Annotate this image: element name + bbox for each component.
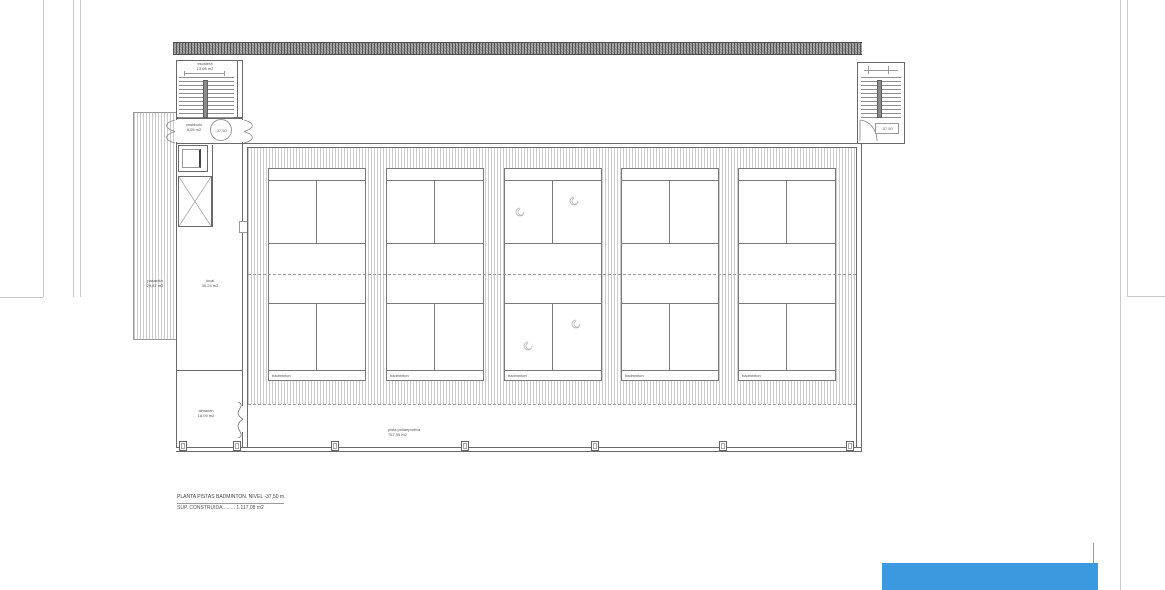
column — [233, 441, 241, 451]
column — [331, 441, 339, 451]
c-vl — [786, 180, 787, 243]
dimension-line — [864, 70, 898, 71]
c-hl — [622, 243, 718, 244]
sketch-symbol — [569, 196, 579, 206]
c-hl — [505, 243, 601, 244]
c-hl — [622, 303, 718, 304]
blue-panel[interactable] — [882, 563, 1098, 590]
plan-line — [167, 120, 175, 143]
title-line-1: PLANTA PISTAS BADMINTON. NIVEL -37,50 m. — [177, 494, 285, 500]
plan-line — [179, 177, 211, 226]
net-center-line — [248, 274, 856, 275]
c-hl — [505, 303, 601, 304]
plan-line — [524, 342, 532, 350]
plan-line: 6,05 m2 — [178, 128, 210, 133]
column — [179, 441, 187, 451]
sketch-symbol — [571, 319, 581, 329]
title-line-2: SUP. CONSTRUIDA......... 1.117,08 m2 — [177, 505, 264, 511]
vestibule-label: vestíbulo6,05 m2 — [178, 123, 210, 133]
walkway-label: pasarela29,87 m2 — [137, 279, 173, 289]
stair-right-stringer — [877, 80, 882, 118]
court-label: badminton — [739, 370, 835, 381]
c-vl — [786, 303, 787, 370]
hall-wall-bottom — [176, 451, 862, 452]
c-hl — [739, 243, 835, 244]
plan-line — [570, 197, 578, 205]
c-vl — [669, 180, 670, 243]
corridor-wall — [212, 145, 213, 227]
hall-wall-right — [861, 143, 862, 452]
double-door-icon — [243, 119, 261, 144]
column — [719, 441, 727, 451]
dimension-line — [184, 73, 224, 74]
frame-line — [73, 0, 74, 297]
c-vl — [669, 303, 670, 370]
dimension-tick — [868, 66, 869, 74]
plan-line — [572, 320, 580, 328]
roof-wall-band — [173, 42, 862, 55]
walkway-strip — [133, 112, 177, 340]
level-badge-right: -37,50 — [875, 123, 899, 134]
vestibule-wall — [176, 143, 243, 144]
column — [591, 441, 599, 451]
frame-line — [0, 297, 43, 298]
hall-wall-bottom-inner — [176, 447, 861, 448]
column — [461, 441, 469, 451]
level-marker-circle: -37,50 — [210, 119, 232, 141]
c-hl — [269, 180, 365, 181]
c-hl — [269, 243, 365, 244]
plan-line: 18,09 m2 — [186, 414, 226, 419]
room-divider-wall — [176, 370, 243, 371]
c-hl — [622, 180, 718, 181]
hall-wall-top — [243, 143, 861, 144]
c-hl — [269, 303, 365, 304]
court-label: badminton — [622, 370, 718, 381]
frame-line — [1120, 0, 1121, 590]
hatch-edge-line — [248, 404, 856, 405]
column — [846, 441, 854, 451]
court-label: badminton — [505, 370, 601, 381]
sketch-symbol — [515, 207, 525, 217]
c-vl — [552, 180, 553, 243]
plan-line: 757,95 m2 — [388, 433, 420, 438]
c-hl — [505, 180, 601, 181]
c-vl — [316, 303, 317, 370]
elevator-car — [182, 149, 201, 168]
level-marker-text: -37,50 — [215, 128, 226, 133]
local-room-label: local40,24 m2 — [193, 279, 227, 289]
plan-line: 29,87 m2 — [137, 284, 173, 289]
c-hl — [387, 303, 483, 304]
dimension-tick — [888, 66, 889, 74]
plan-line — [244, 120, 252, 143]
storage-label: almacén18,09 m2 — [186, 409, 226, 419]
plan-line: 13,66 m2 — [182, 67, 228, 72]
x-cross-icon — [179, 177, 211, 226]
frame-line — [43, 0, 44, 297]
double-door-icon — [158, 119, 176, 144]
c-hl — [739, 303, 835, 304]
stair-left-stringer — [203, 80, 208, 118]
plan-line — [238, 402, 243, 438]
c-hl — [387, 180, 483, 181]
court-label: badminton — [387, 370, 483, 381]
level-badge-text: -37,50 — [881, 126, 892, 131]
c-hl — [739, 180, 835, 181]
c-vl — [434, 303, 435, 370]
plan-line: 40,24 m2 — [193, 284, 227, 289]
frame-line — [1127, 296, 1165, 297]
c-vl — [434, 180, 435, 243]
frame-line — [80, 0, 81, 297]
hall-wall-right-inner — [856, 147, 857, 448]
c-vl — [316, 180, 317, 243]
c-vl — [552, 303, 553, 370]
sports-area-label: pista polideportiva757,95 m2 — [388, 428, 420, 438]
stair-left-wall — [237, 60, 238, 118]
sketch-symbol — [523, 341, 533, 351]
frame-line — [1127, 0, 1128, 297]
plan-line — [516, 208, 524, 216]
c-hl — [387, 243, 483, 244]
stair-left-label: escalera13,66 m2 — [182, 62, 228, 72]
title-underline — [177, 503, 284, 504]
frame-line — [1093, 543, 1094, 563]
court-label: badminton — [269, 370, 365, 381]
floor-plan-sheet: pasarela29,87 m2 escalera13,66 m2 vestíb… — [0, 0, 1165, 590]
